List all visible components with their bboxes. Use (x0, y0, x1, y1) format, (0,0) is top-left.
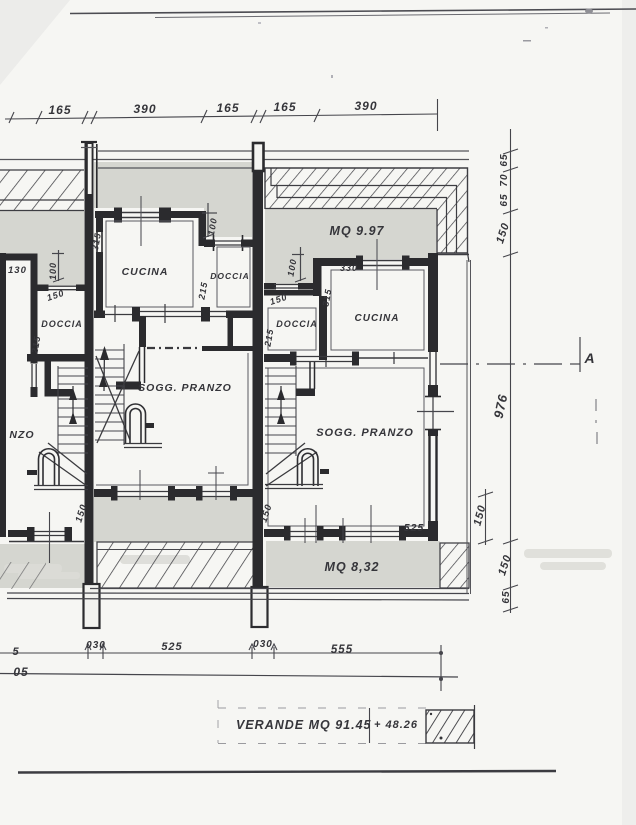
svg-text:5: 5 (12, 646, 19, 658)
svg-text:05: 05 (13, 665, 28, 679)
svg-text:65: 65 (499, 193, 510, 206)
svg-text:SOGG. PRANZO: SOGG. PRANZO (138, 382, 232, 394)
svg-text:390: 390 (354, 99, 377, 113)
svg-text:DOCCIA: DOCCIA (276, 319, 318, 329)
svg-text:030: 030 (253, 639, 273, 650)
svg-text:A: A (583, 350, 595, 366)
svg-text:VERANDE MQ 91.45: VERANDE MQ 91.45 (236, 718, 372, 732)
svg-text:525: 525 (404, 522, 425, 534)
svg-text:+ 48.26: + 48.26 (374, 719, 418, 731)
svg-text:555: 555 (331, 644, 353, 656)
svg-text:390: 390 (133, 102, 156, 116)
svg-text:130: 130 (8, 265, 27, 276)
svg-text:525: 525 (161, 641, 182, 653)
svg-text:CUCINA: CUCINA (355, 313, 400, 324)
svg-text:165: 165 (216, 101, 239, 115)
svg-text:CUCINA: CUCINA (122, 266, 169, 278)
svg-text:NZO: NZO (9, 429, 34, 441)
svg-text:MQ 8,32: MQ 8,32 (325, 560, 380, 574)
svg-text:100: 100 (48, 262, 58, 280)
svg-text:165: 165 (273, 100, 296, 114)
svg-text:MQ 9.97: MQ 9.97 (330, 224, 385, 238)
svg-text:DOCCIA: DOCCIA (41, 319, 83, 329)
svg-text:030: 030 (86, 640, 106, 651)
svg-text:DOCCIA: DOCCIA (210, 271, 250, 281)
svg-text:65: 65 (501, 590, 512, 603)
svg-text:SOGG. PRANZO: SOGG. PRANZO (316, 427, 414, 439)
svg-text:65: 65 (499, 153, 510, 166)
svg-text:330: 330 (340, 263, 358, 273)
svg-text:70: 70 (499, 173, 510, 186)
svg-text:165: 165 (48, 103, 71, 117)
